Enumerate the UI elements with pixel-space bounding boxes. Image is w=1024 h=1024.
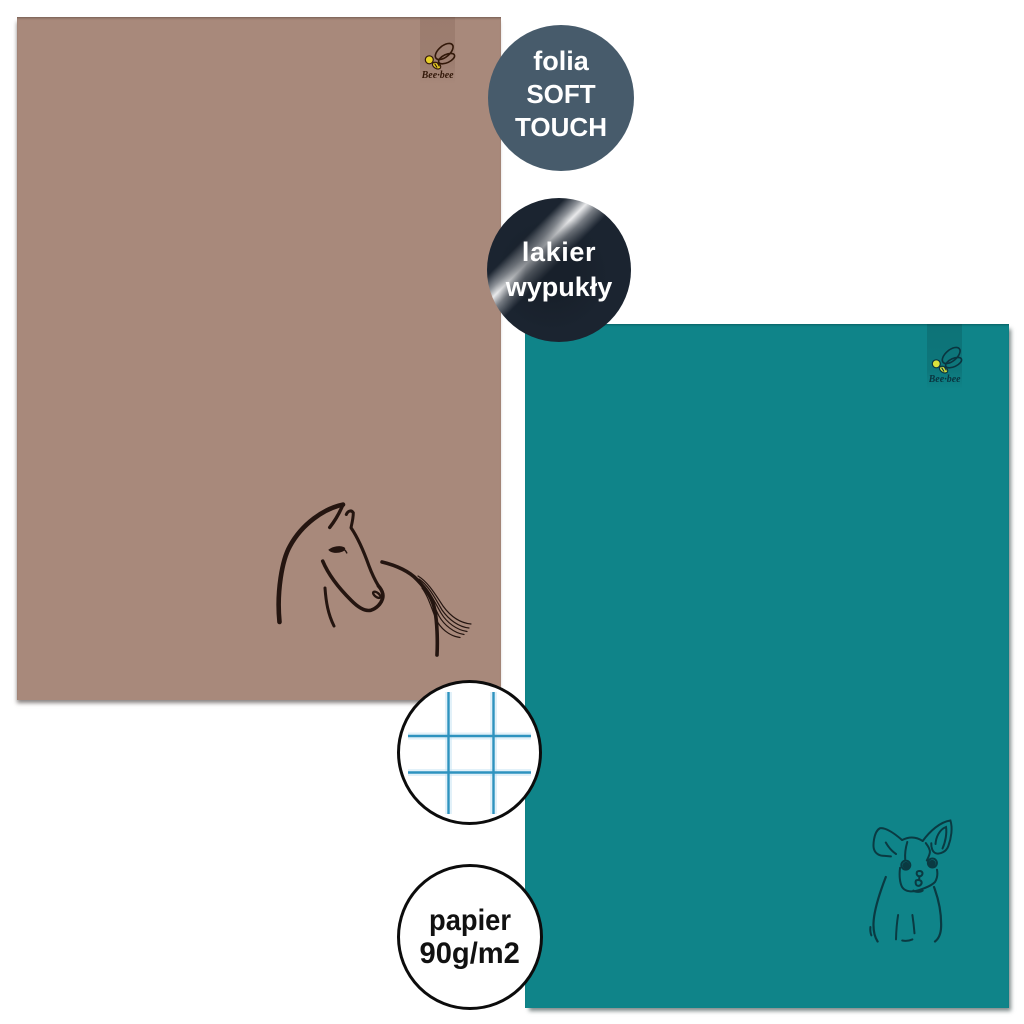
svg-text:Bee·bee: Bee·bee: [422, 70, 454, 81]
svg-text:Bee·bee: Bee·bee: [929, 374, 961, 385]
